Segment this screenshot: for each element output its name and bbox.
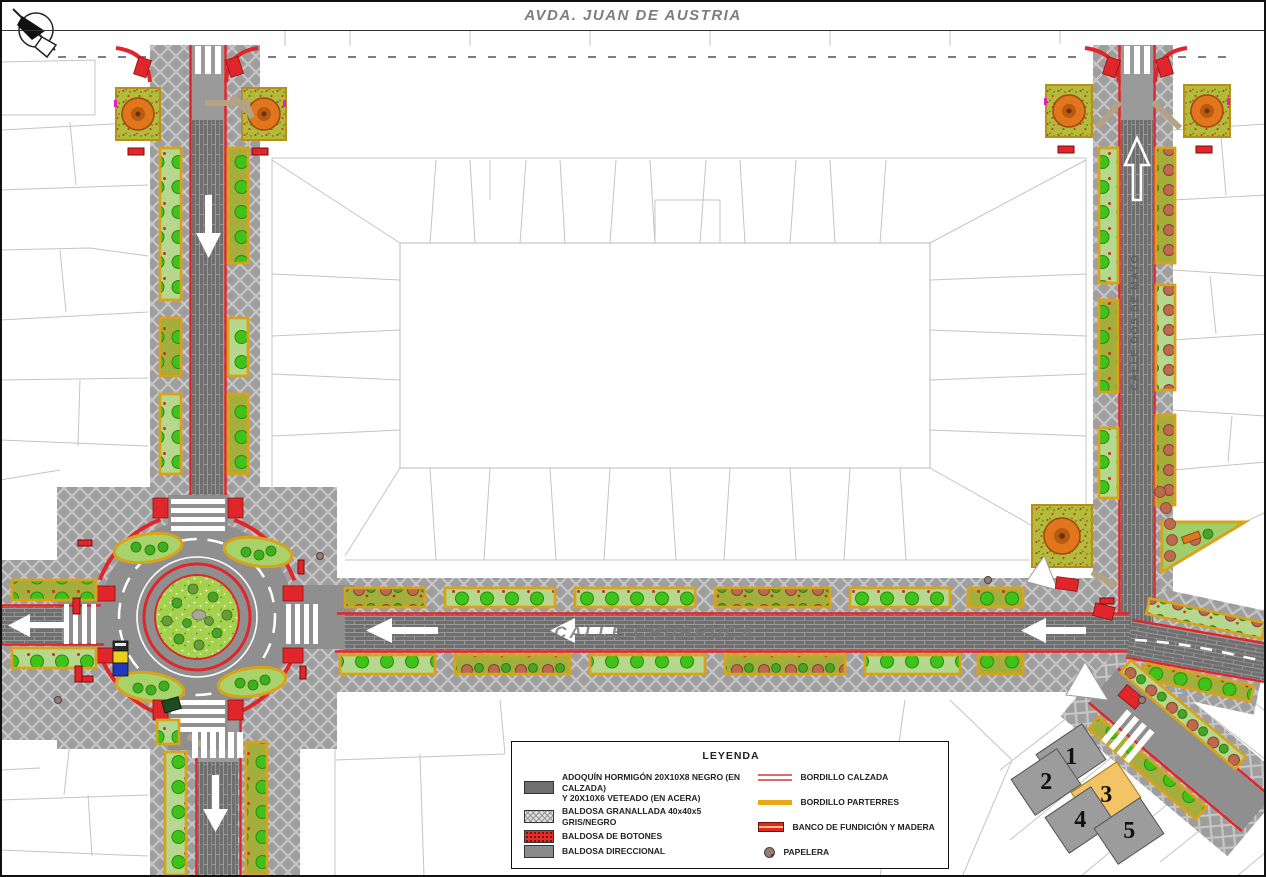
legend-item-granallada: BALDOSA GRANALLADA 40x40x5 GRIS/NEGRO — [524, 806, 752, 827]
legend-item-direccional: BALDOSA DIRECCIONAL — [524, 845, 752, 858]
granallada-swatch-icon — [524, 810, 554, 823]
legend-box: LEYENDA ADOQUÍN HORMIGÓN 20X10X8 NEGRO (… — [511, 741, 949, 869]
legend-label: PAPELERA — [783, 847, 829, 858]
bordillo-parterres-swatch-icon — [758, 800, 792, 805]
legend-label: BORDILLO PARTERRES — [800, 797, 899, 808]
sheet-tile-number: 5 — [1123, 818, 1135, 845]
legend-label: BORDILLO CALZADA — [800, 772, 888, 783]
title-bar: AVDA. JUAN DE AUSTRIA — [0, 0, 1266, 31]
legend-item-papelera: PAPELERA — [758, 847, 938, 858]
legend-label: BANCO DE FUNDICIÓN Y MADERA — [792, 822, 934, 833]
papelera-swatch-icon — [764, 847, 775, 858]
legend-title: LEYENDA — [524, 750, 938, 762]
legend-item-bordillo-calzada: BORDILLO CALZADA — [758, 772, 938, 783]
legend-label: BALDOSA DIRECCIONAL — [562, 846, 665, 857]
adoquin-swatch-icon — [524, 781, 554, 794]
legend-label: BALDOSA DE BOTONES — [562, 831, 662, 842]
plan-sheet: CALLE CHURRUCA CALLE DOS DE MAYO AVDA. J… — [0, 0, 1266, 877]
legend-label-line2: Y 20X10X6 VETEADO (EN ACERA) — [562, 793, 700, 803]
direccional-swatch-icon — [524, 845, 554, 858]
street-label-churruca: CALLE CHURRUCA — [554, 623, 756, 642]
banco-swatch-icon — [758, 822, 784, 832]
legend-item-bordillo-parterres: BORDILLO PARTERRES — [758, 797, 938, 808]
street-label-vertical: CALLE DOS DE MAYO — [1129, 253, 1141, 390]
sheet-tile-number: 2 — [1040, 769, 1052, 796]
legend-item-adoquin: ADOQUÍN HORMIGÓN 20X10X8 NEGRO (EN CALZA… — [524, 772, 752, 804]
legend-label: ADOQUÍN HORMIGÓN 20X10X8 NEGRO (EN CALZA… — [562, 772, 740, 793]
bordillo-calzada-swatch-icon — [758, 774, 792, 781]
legend-label: BALDOSA GRANALLADA 40x40x5 GRIS/NEGRO — [562, 806, 752, 827]
vehicle-car — [113, 641, 128, 676]
botones-swatch-icon — [524, 830, 554, 843]
page-title: AVDA. JUAN DE AUSTRIA — [524, 7, 741, 24]
legend-item-botones: BALDOSA DE BOTONES — [524, 830, 752, 843]
sheet-tile-number: 4 — [1074, 807, 1086, 834]
legend-item-banco: BANCO DE FUNDICIÓN Y MADERA — [758, 822, 938, 833]
